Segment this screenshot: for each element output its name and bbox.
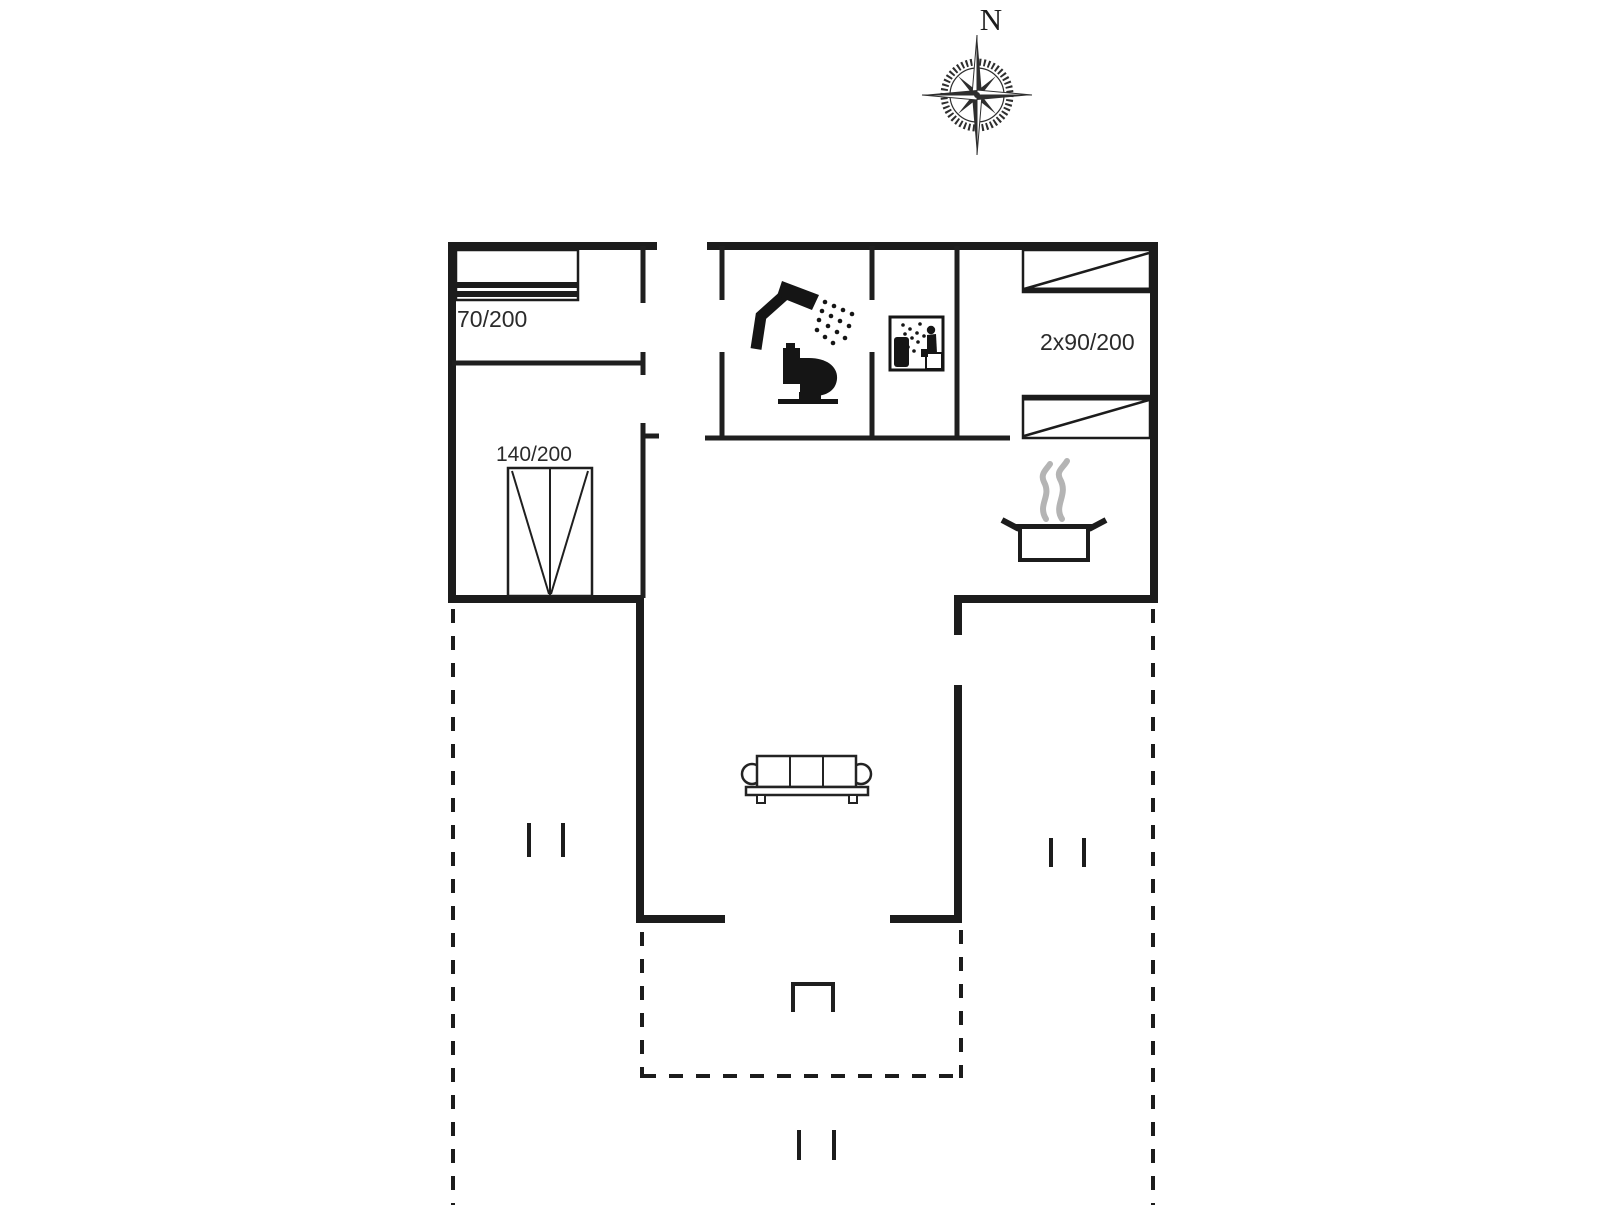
compass-rose-icon [922, 35, 1032, 155]
steam-icon [1043, 461, 1067, 519]
bed-size-label-double: 140/200 [496, 443, 572, 466]
terrace-markers [529, 823, 1084, 1160]
toilet-icon [778, 343, 838, 404]
cooking-pot-icon [1002, 520, 1106, 560]
sofa-icon [742, 756, 871, 803]
single-bed-icon [456, 250, 578, 300]
double-bed-icon [508, 468, 592, 596]
twin-bed-top-icon [1023, 250, 1150, 292]
terrace-step-icon [791, 984, 835, 1012]
compass-north-label: N [980, 2, 1002, 37]
bed-size-label-single: 70/200 [457, 306, 527, 332]
shower-icon [756, 281, 854, 349]
sauna-icon [890, 317, 943, 370]
floor-plan-drawing: N [0, 0, 1606, 1205]
twin-bed-bottom-icon [1023, 396, 1150, 438]
bed-size-label-twin: 2x90/200 [1040, 329, 1135, 355]
floor-plan-canvas: N [0, 0, 1606, 1205]
terrace-boundaries [453, 609, 1153, 1205]
